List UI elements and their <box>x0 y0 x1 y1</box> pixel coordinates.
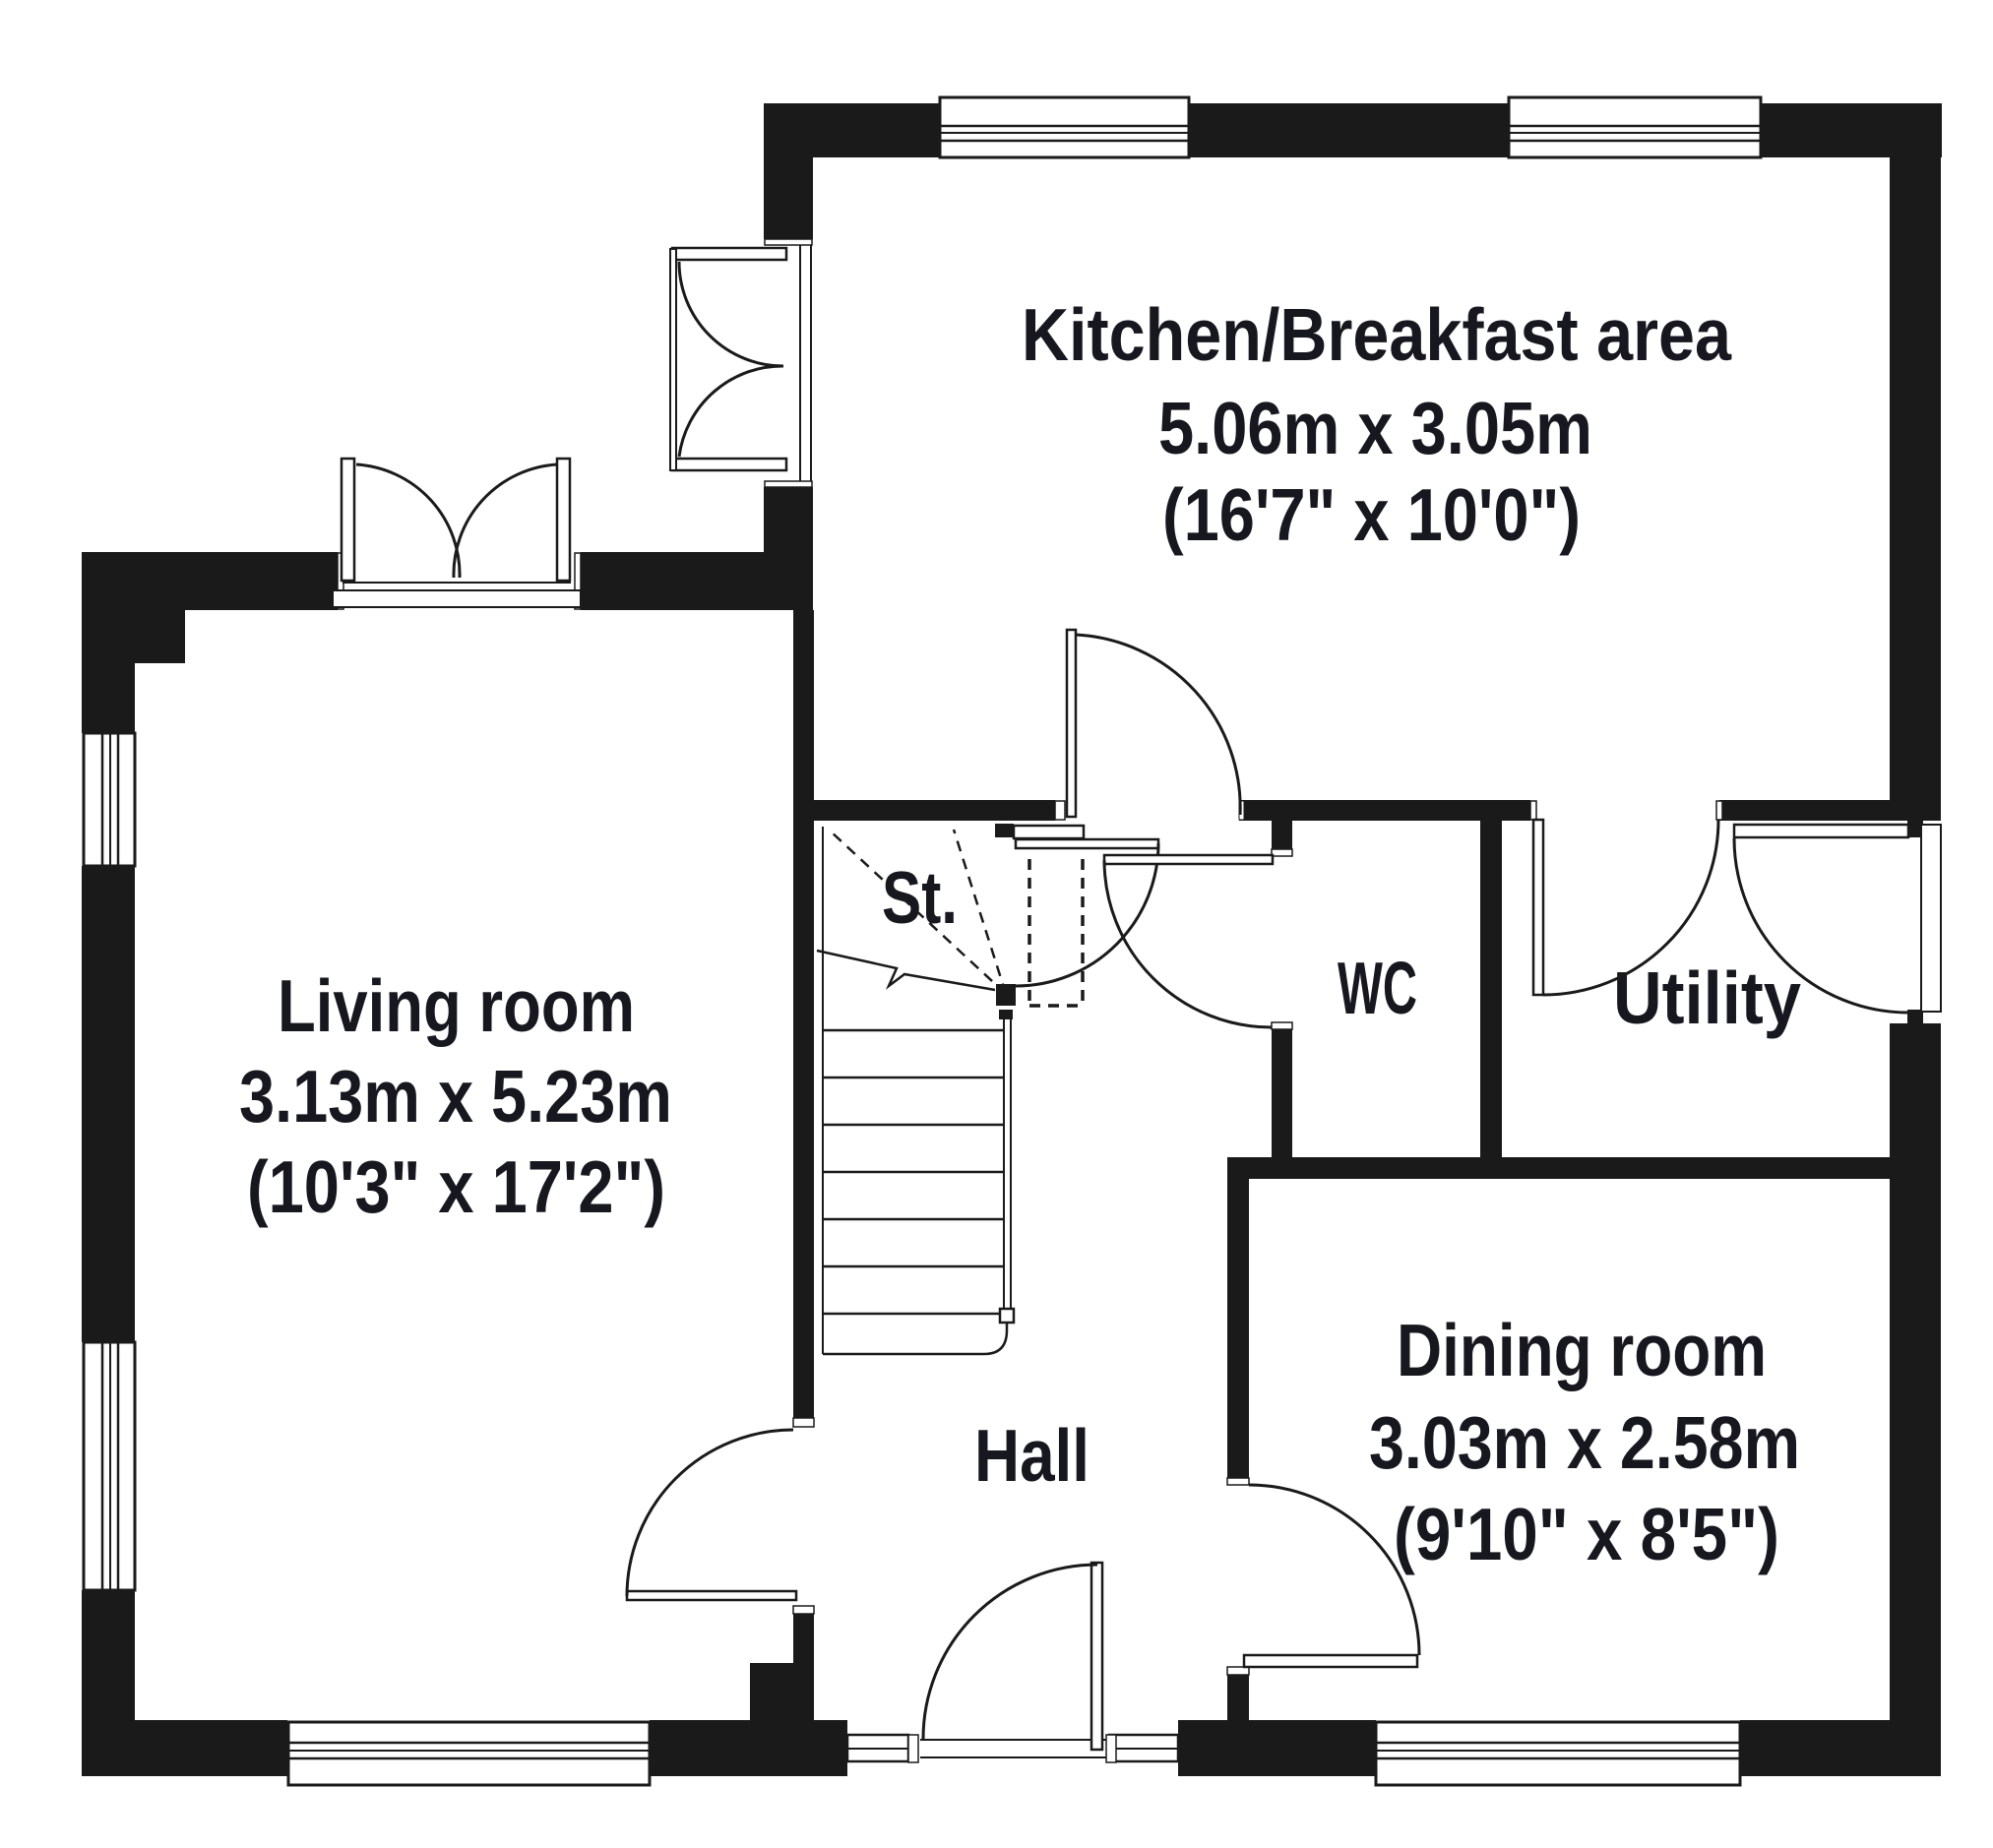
svg-text:St.: St. <box>882 856 958 939</box>
svg-text:Kitchen/Breakfast area: Kitchen/Breakfast area <box>1022 293 1732 376</box>
svg-text:Dining room: Dining room <box>1397 1309 1767 1391</box>
svg-text:(9'10" x 8'5"): (9'10" x 8'5") <box>1394 1493 1779 1575</box>
svg-text:3.03m x 2.58m: 3.03m x 2.58m <box>1369 1401 1800 1484</box>
svg-text:Living room: Living room <box>278 964 635 1047</box>
svg-text:3.13m x 5.23m: 3.13m x 5.23m <box>239 1055 672 1138</box>
svg-text:WC: WC <box>1338 947 1417 1029</box>
svg-text:Utility: Utility <box>1613 956 1801 1039</box>
svg-text:(10'3" x 17'2"): (10'3" x 17'2") <box>247 1145 665 1228</box>
svg-text:(16'7" x 10'0"): (16'7" x 10'0") <box>1162 473 1581 556</box>
svg-text:5.06m x 3.05m: 5.06m x 3.05m <box>1158 387 1592 469</box>
svg-text:Hall: Hall <box>974 1414 1090 1497</box>
